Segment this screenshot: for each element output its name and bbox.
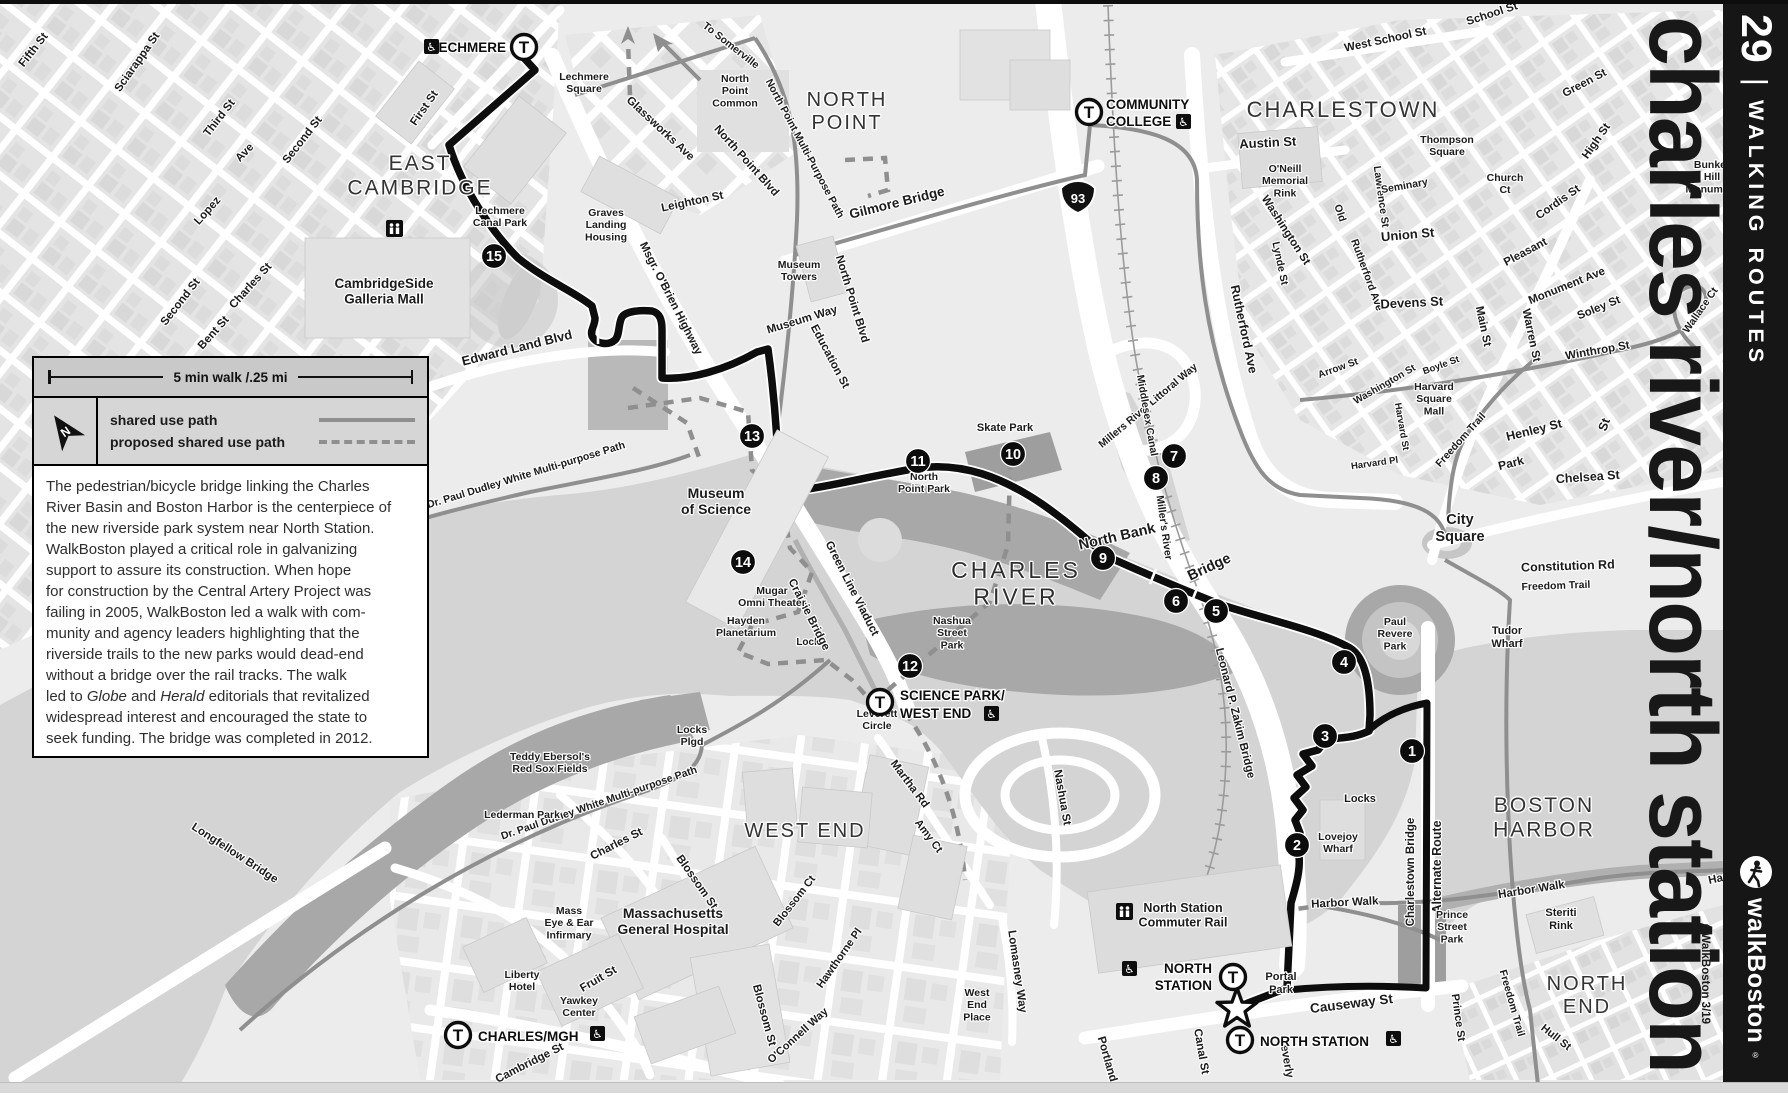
svg-text:♿: ♿ <box>1388 1032 1398 1046</box>
map-label: MuseumTowers <box>778 259 821 283</box>
svg-text:15: 15 <box>486 249 502 265</box>
route-waypoint-14: 14 <box>731 550 756 575</box>
station-name: WEST END <box>900 706 972 721</box>
route-separator: | <box>1739 78 1773 86</box>
t-letter: T <box>1228 968 1239 987</box>
north-arrow-cell: N <box>34 398 98 464</box>
legend-item-proposed-path: proposed shared use path <box>110 434 415 450</box>
description-line: failing in 2005, WalkBoston led a walk w… <box>46 602 415 623</box>
t-letter: T <box>453 1026 464 1045</box>
scale-label: 5 min walk /.25 mi <box>163 370 297 385</box>
description-line: seek funding. The bridge was completed i… <box>46 728 415 749</box>
route-header: 29 | WALKING ROUTES <box>1731 14 1780 367</box>
map-label: Museumof Science <box>681 485 751 517</box>
route-waypoint-4: 4 <box>1332 650 1357 675</box>
map-label: Lederman Park <box>484 809 560 821</box>
t-letter: T <box>1084 103 1095 122</box>
route-waypoint-6: 6 <box>1164 589 1189 614</box>
map-label: BOSTONHARBOR <box>1493 794 1595 841</box>
scale-line-left <box>48 376 163 379</box>
map-title-vertical: charles river/north station <box>1629 16 1736 1072</box>
svg-text:♿: ♿ <box>592 1027 602 1041</box>
route-waypoint-2: 2 <box>1285 833 1310 858</box>
svg-text:♿: ♿ <box>986 707 996 721</box>
mall-icon <box>386 220 403 237</box>
page-edge <box>0 1082 1788 1093</box>
route-waypoint-13: 13 <box>740 424 765 449</box>
description-line: riverside trails to the new parks would … <box>46 644 415 665</box>
map-label: MassachusettsGeneral Hospital <box>617 905 728 937</box>
route-waypoint-12: 12 <box>898 654 923 679</box>
svg-text:8: 8 <box>1152 471 1160 487</box>
map-label: TudorWharf <box>1491 625 1523 650</box>
svg-text:12: 12 <box>902 659 918 675</box>
map-label: North StationCommuter Rail <box>1139 901 1228 930</box>
route-waypoint-1: 1 <box>1400 739 1425 764</box>
description-line: The pedestrian/bicycle bridge linking th… <box>46 476 415 497</box>
svg-text:3: 3 <box>1321 729 1329 745</box>
commuter-rail-icon <box>1116 903 1133 920</box>
map-credit: ©WalkBoston 3/19 <box>1699 924 1711 1024</box>
map-label: PrinceStreetPark <box>1436 909 1468 945</box>
description-line: River Basin and Boston Harbor is the cen… <box>46 497 415 518</box>
map-label: Alternate Route <box>1430 820 1444 913</box>
map-page: Fifth StSciarappa StThird StSecond StAve… <box>0 0 1788 1092</box>
scale-bar: 5 min walk /.25 mi <box>32 356 429 396</box>
map-label: LocksPlgd <box>677 724 708 748</box>
description-text: The pedestrian/bicycle bridge linking th… <box>46 476 415 749</box>
station-name: COLLEGE <box>1106 114 1171 129</box>
walkboston-walker-icon <box>1738 854 1774 890</box>
map-label: Skate Park <box>977 422 1034 434</box>
svg-text:4: 4 <box>1340 655 1348 671</box>
description-line: without a bridge over the rail tracks. T… <box>46 665 415 686</box>
route-waypoint-7: 7 <box>1162 444 1187 469</box>
description-line: led to Globe and Herald editorials that … <box>46 686 415 707</box>
route-number: 29 <box>1731 14 1780 64</box>
map-label: PortalPark <box>1265 971 1296 996</box>
description-line: for construction by the Central Artery P… <box>46 581 415 602</box>
map-label: Locks <box>1344 793 1376 805</box>
map-label: YawkeyCenter <box>560 995 598 1019</box>
description-line: WalkBoston played a critical role in gal… <box>46 539 415 560</box>
svg-text:♿: ♿ <box>1178 115 1188 129</box>
scale-line-right <box>298 376 413 379</box>
legend-label: shared use path <box>110 412 217 428</box>
svg-text:14: 14 <box>735 555 751 571</box>
solid-path-key <box>319 418 415 422</box>
map-label: CHARLESTOWN <box>1247 97 1440 122</box>
svg-text:11: 11 <box>910 454 925 470</box>
map-label: NORTHPOINT <box>807 89 888 134</box>
svg-text:6: 6 <box>1172 594 1180 610</box>
north-arrow-icon: N <box>43 409 87 453</box>
svg-text:♿: ♿ <box>426 40 436 54</box>
sidebar: 29 | WALKING ROUTES walkBoston ® <box>1723 0 1788 1082</box>
map-label: LibertyHotel <box>504 969 539 993</box>
station-name: NORTH STATION <box>1260 1034 1369 1049</box>
station-name: COMMUNITY <box>1106 97 1189 112</box>
map-label: CambridgeSideGalleria Mall <box>334 276 434 307</box>
route-waypoint-15: 15 <box>482 244 507 269</box>
svg-text:10: 10 <box>1005 447 1021 463</box>
walking-routes-title: WALKING ROUTES <box>1743 100 1768 367</box>
legend-item-shared-use-path: shared use path <box>110 412 415 428</box>
map-label: SteritiRink <box>1545 907 1576 932</box>
map-label: Teddy Ebersol'sRed Sox Fields <box>510 751 590 775</box>
svg-text:93: 93 <box>1071 191 1085 206</box>
route-waypoint-8: 8 <box>1144 466 1169 491</box>
map-label: LechmereSquare <box>559 71 609 95</box>
description-line: munity and agency leaders highlighting t… <box>46 623 415 644</box>
map-label: Charlestown Bridge <box>1405 818 1417 927</box>
description-line: widespread interest and encouraged the s… <box>46 707 415 728</box>
t-letter: T <box>519 38 530 57</box>
station-name: STATION <box>1155 978 1212 993</box>
svg-text:13: 13 <box>744 429 760 445</box>
t-letter: T <box>1235 1031 1246 1050</box>
top-border <box>0 0 1788 4</box>
station-name: SCIENCE PARK/ <box>900 688 1005 703</box>
svg-text:9: 9 <box>1099 551 1107 567</box>
description-box: The pedestrian/bicycle bridge linking th… <box>32 464 429 758</box>
walkboston-wordmark: walkBoston <box>1741 898 1770 1043</box>
description-line: support to assure its construction. When… <box>46 560 415 581</box>
map-label: WestEndPlace <box>963 987 991 1023</box>
map-label: WEST END <box>744 820 865 842</box>
svg-text:2: 2 <box>1293 838 1301 854</box>
route-waypoint-3: 3 <box>1313 724 1338 749</box>
walkboston-logo: walkBoston ® <box>1738 854 1774 1060</box>
map-label: GravesLandingHousing <box>585 207 627 243</box>
legend: N shared use path proposed shared use pa… <box>32 396 429 464</box>
station-name: NORTH <box>1164 961 1212 976</box>
svg-text:♿: ♿ <box>1124 962 1134 976</box>
svg-text:1: 1 <box>1408 744 1416 760</box>
dashed-path-key <box>319 440 415 444</box>
map-label: Austin St <box>1239 133 1297 151</box>
route-waypoint-10: 10 <box>1001 442 1026 467</box>
legend-label: proposed shared use path <box>110 434 285 450</box>
building <box>1010 60 1070 110</box>
station-name: CHARLES/MGH <box>478 1029 579 1044</box>
registered-mark: ® <box>1751 1051 1760 1060</box>
legend-rows: shared use path proposed shared use path <box>98 398 427 464</box>
description-line: the new riverside park system near North… <box>46 518 415 539</box>
map-label: LovejoyWharf <box>1318 831 1358 855</box>
svg-text:5: 5 <box>1212 604 1220 620</box>
t-letter: T <box>875 693 886 712</box>
map-label: LechmereCanal Park <box>473 205 527 229</box>
map-label: Freedom Trail <box>1521 579 1590 593</box>
route-waypoint-9: 9 <box>1091 546 1116 571</box>
route-waypoint-11: 11 <box>906 449 931 474</box>
svg-text:7: 7 <box>1170 449 1178 465</box>
route-waypoint-5: 5 <box>1204 599 1229 624</box>
station-name: LECHMERE <box>430 40 506 55</box>
